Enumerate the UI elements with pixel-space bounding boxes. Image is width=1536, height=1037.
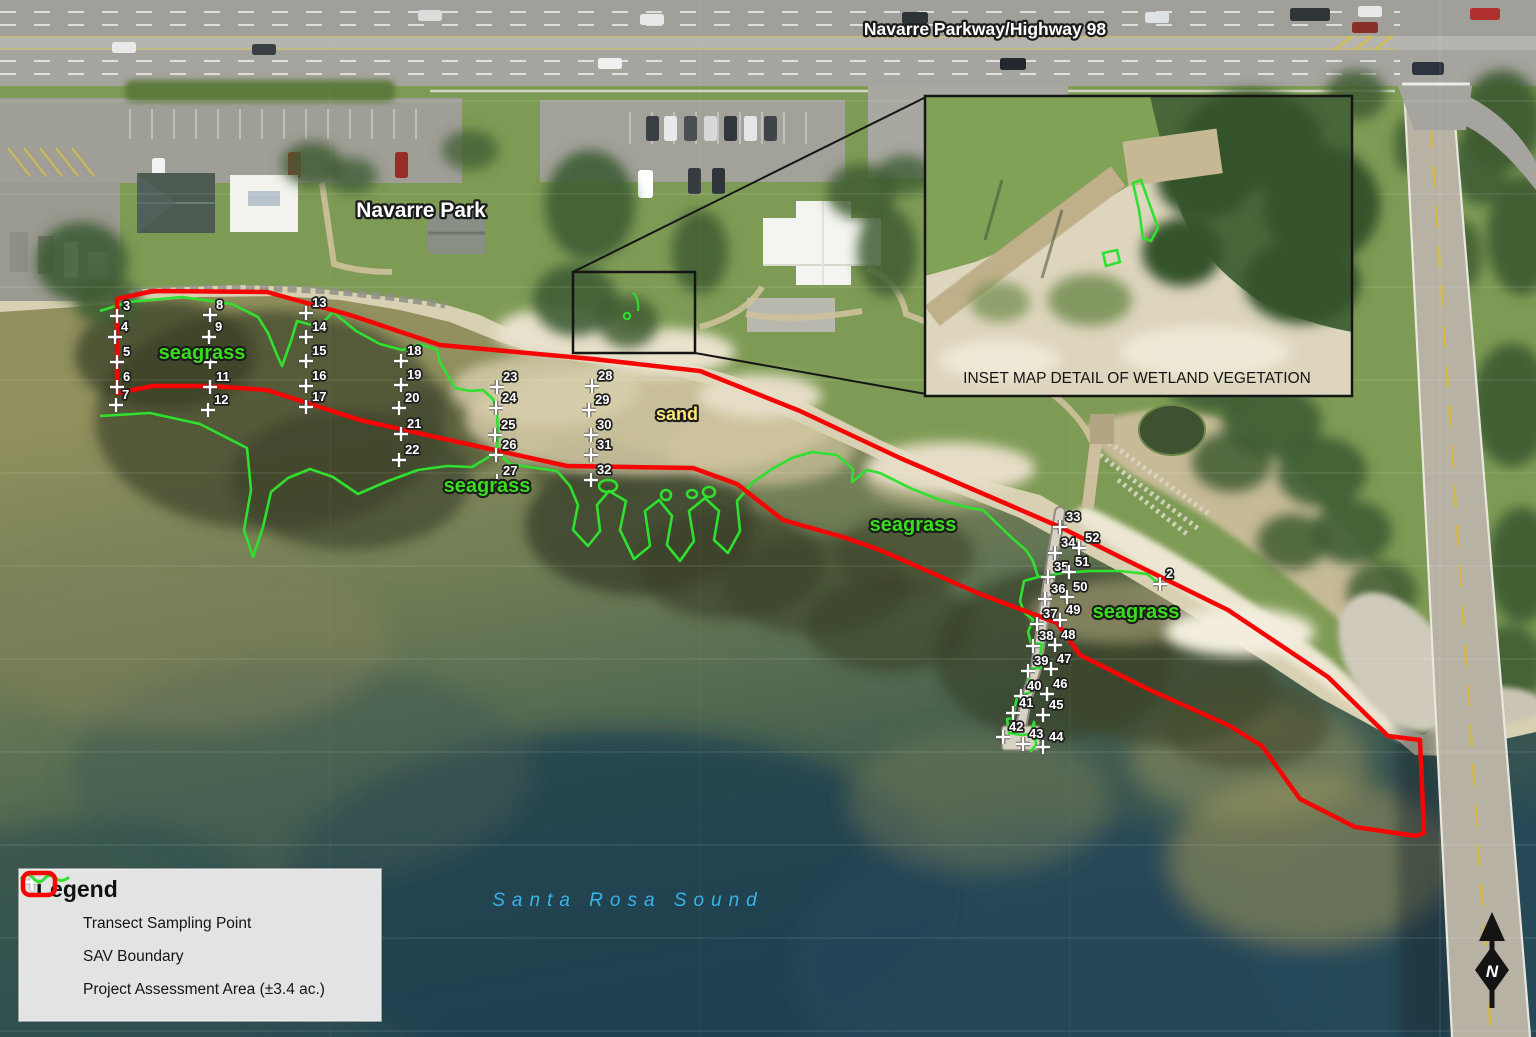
seagrass-label-mid: seagrass	[444, 475, 531, 497]
sampling-point-number: 33	[1066, 509, 1080, 524]
legend-item-label: SAV Boundary	[83, 948, 184, 966]
legend-item-assessment: Project Assessment Area (±3.4 ac.)	[19, 973, 381, 1006]
sampling-point-number: 20	[405, 390, 419, 405]
sampling-point-number: 2	[1166, 566, 1173, 581]
seagrass-label-left: seagrass	[159, 342, 246, 364]
legend-item-sav: SAV Boundary	[19, 940, 381, 973]
sampling-point-number: 9	[215, 319, 222, 334]
sampling-point-number: 30	[597, 417, 611, 432]
hedge	[125, 80, 395, 102]
seagrass-survey-map: INSET MAP DETAIL OF WETLAND VEGETATION 3…	[0, 0, 1536, 1037]
sampling-point-number: 39	[1034, 653, 1048, 668]
sampling-point-number: 44	[1049, 729, 1064, 744]
sampling-point-number: 12	[214, 392, 228, 407]
sampling-point-number: 48	[1061, 627, 1075, 642]
legend-panel: Legend Transect Sampling Point SAV Bound…	[18, 868, 382, 1022]
sampling-point-number: 52	[1085, 530, 1099, 545]
sampling-point-number: 22	[405, 442, 419, 457]
sampling-point-number: 16	[312, 368, 326, 383]
sampling-point-number: 8	[216, 297, 223, 312]
sampling-point-number: 17	[312, 389, 326, 404]
sampling-point-number: 45	[1049, 697, 1063, 712]
sampling-point-number: 36	[1051, 581, 1065, 596]
sampling-point-number: 29	[595, 392, 609, 407]
sampling-point-number: 50	[1073, 579, 1087, 594]
sampling-point-number: 43	[1029, 726, 1043, 741]
legend-item-label: Transect Sampling Point	[83, 915, 251, 933]
sampling-point-number: 19	[407, 367, 421, 382]
north-letter: N	[1486, 962, 1499, 981]
road-label: Navarre Parkway/Highway 98	[864, 19, 1106, 39]
sampling-point-number: 3	[123, 298, 130, 313]
sampling-point-number: 11	[216, 369, 230, 384]
sampling-point-number: 5	[123, 344, 130, 359]
inset-caption: INSET MAP DETAIL OF WETLAND VEGETATION	[963, 370, 1311, 387]
sampling-point-number: 42	[1009, 719, 1023, 734]
sampling-point-number: 15	[312, 343, 326, 358]
sampling-point-number: 4	[121, 319, 129, 334]
sampling-point-number: 31	[597, 437, 611, 452]
sampling-point-number: 25	[501, 417, 515, 432]
legend-title: Legend	[36, 876, 381, 903]
legend-item-label: Project Assessment Area (±3.4 ac.)	[83, 981, 325, 999]
seagrass-label-east: seagrass	[870, 514, 957, 536]
sampling-point-number: 6	[123, 369, 130, 384]
seagrass-label-far-east: seagrass	[1093, 601, 1180, 623]
sampling-point-number: 23	[503, 369, 517, 384]
sampling-point-number: 26	[502, 437, 516, 452]
park-label: Navarre Park	[356, 199, 486, 222]
sampling-point-number: 49	[1066, 602, 1080, 617]
sampling-point-number: 14	[312, 319, 327, 334]
legend-item-transect: Transect Sampling Point	[19, 907, 381, 940]
sampling-point-number: 51	[1075, 554, 1089, 569]
sampling-point-number: 38	[1039, 628, 1053, 643]
sampling-point-number: 7	[122, 387, 129, 402]
sampling-point-number: 47	[1057, 651, 1071, 666]
sampling-point-number: 40	[1027, 678, 1041, 693]
sampling-point-number: 41	[1019, 695, 1033, 710]
inset-map: INSET MAP DETAIL OF WETLAND VEGETATION	[925, 90, 1380, 396]
sampling-point-number: 28	[598, 368, 612, 383]
pond	[1139, 405, 1205, 455]
water-body-label: Santa Rosa Sound	[492, 890, 764, 911]
sampling-point-number: 13	[312, 295, 326, 310]
sampling-point-number: 18	[407, 343, 421, 358]
sampling-point-number: 21	[407, 416, 421, 431]
sampling-point-number: 24	[502, 390, 517, 405]
sampling-point-number: 46	[1053, 676, 1067, 691]
sampling-point-number: 32	[597, 462, 611, 477]
sand-label: sand	[656, 404, 698, 424]
